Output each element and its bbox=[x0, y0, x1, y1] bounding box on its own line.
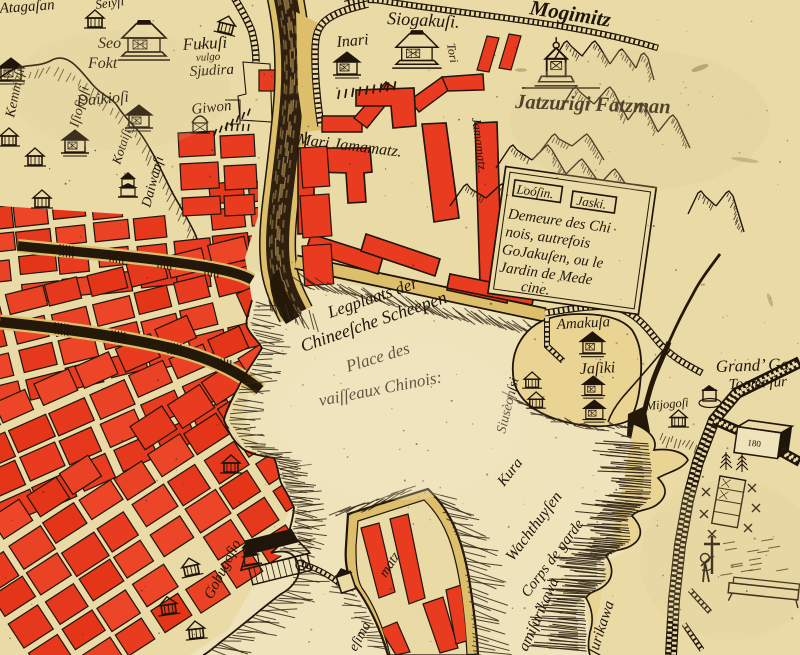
svg-text:Siogakuſi.: Siogakuſi. bbox=[387, 8, 460, 32]
svg-text:180: 180 bbox=[747, 437, 762, 449]
svg-text:Jaſiki: Jaſiki bbox=[579, 359, 615, 378]
svg-text:Toomi ſur: Toomi ſur bbox=[728, 374, 787, 393]
svg-text:Inari: Inari bbox=[335, 31, 369, 51]
svg-text:Amakuſa: Amakuſa bbox=[555, 314, 610, 333]
svg-text:Grand’ Ga: Grand’ Ga bbox=[715, 354, 789, 376]
